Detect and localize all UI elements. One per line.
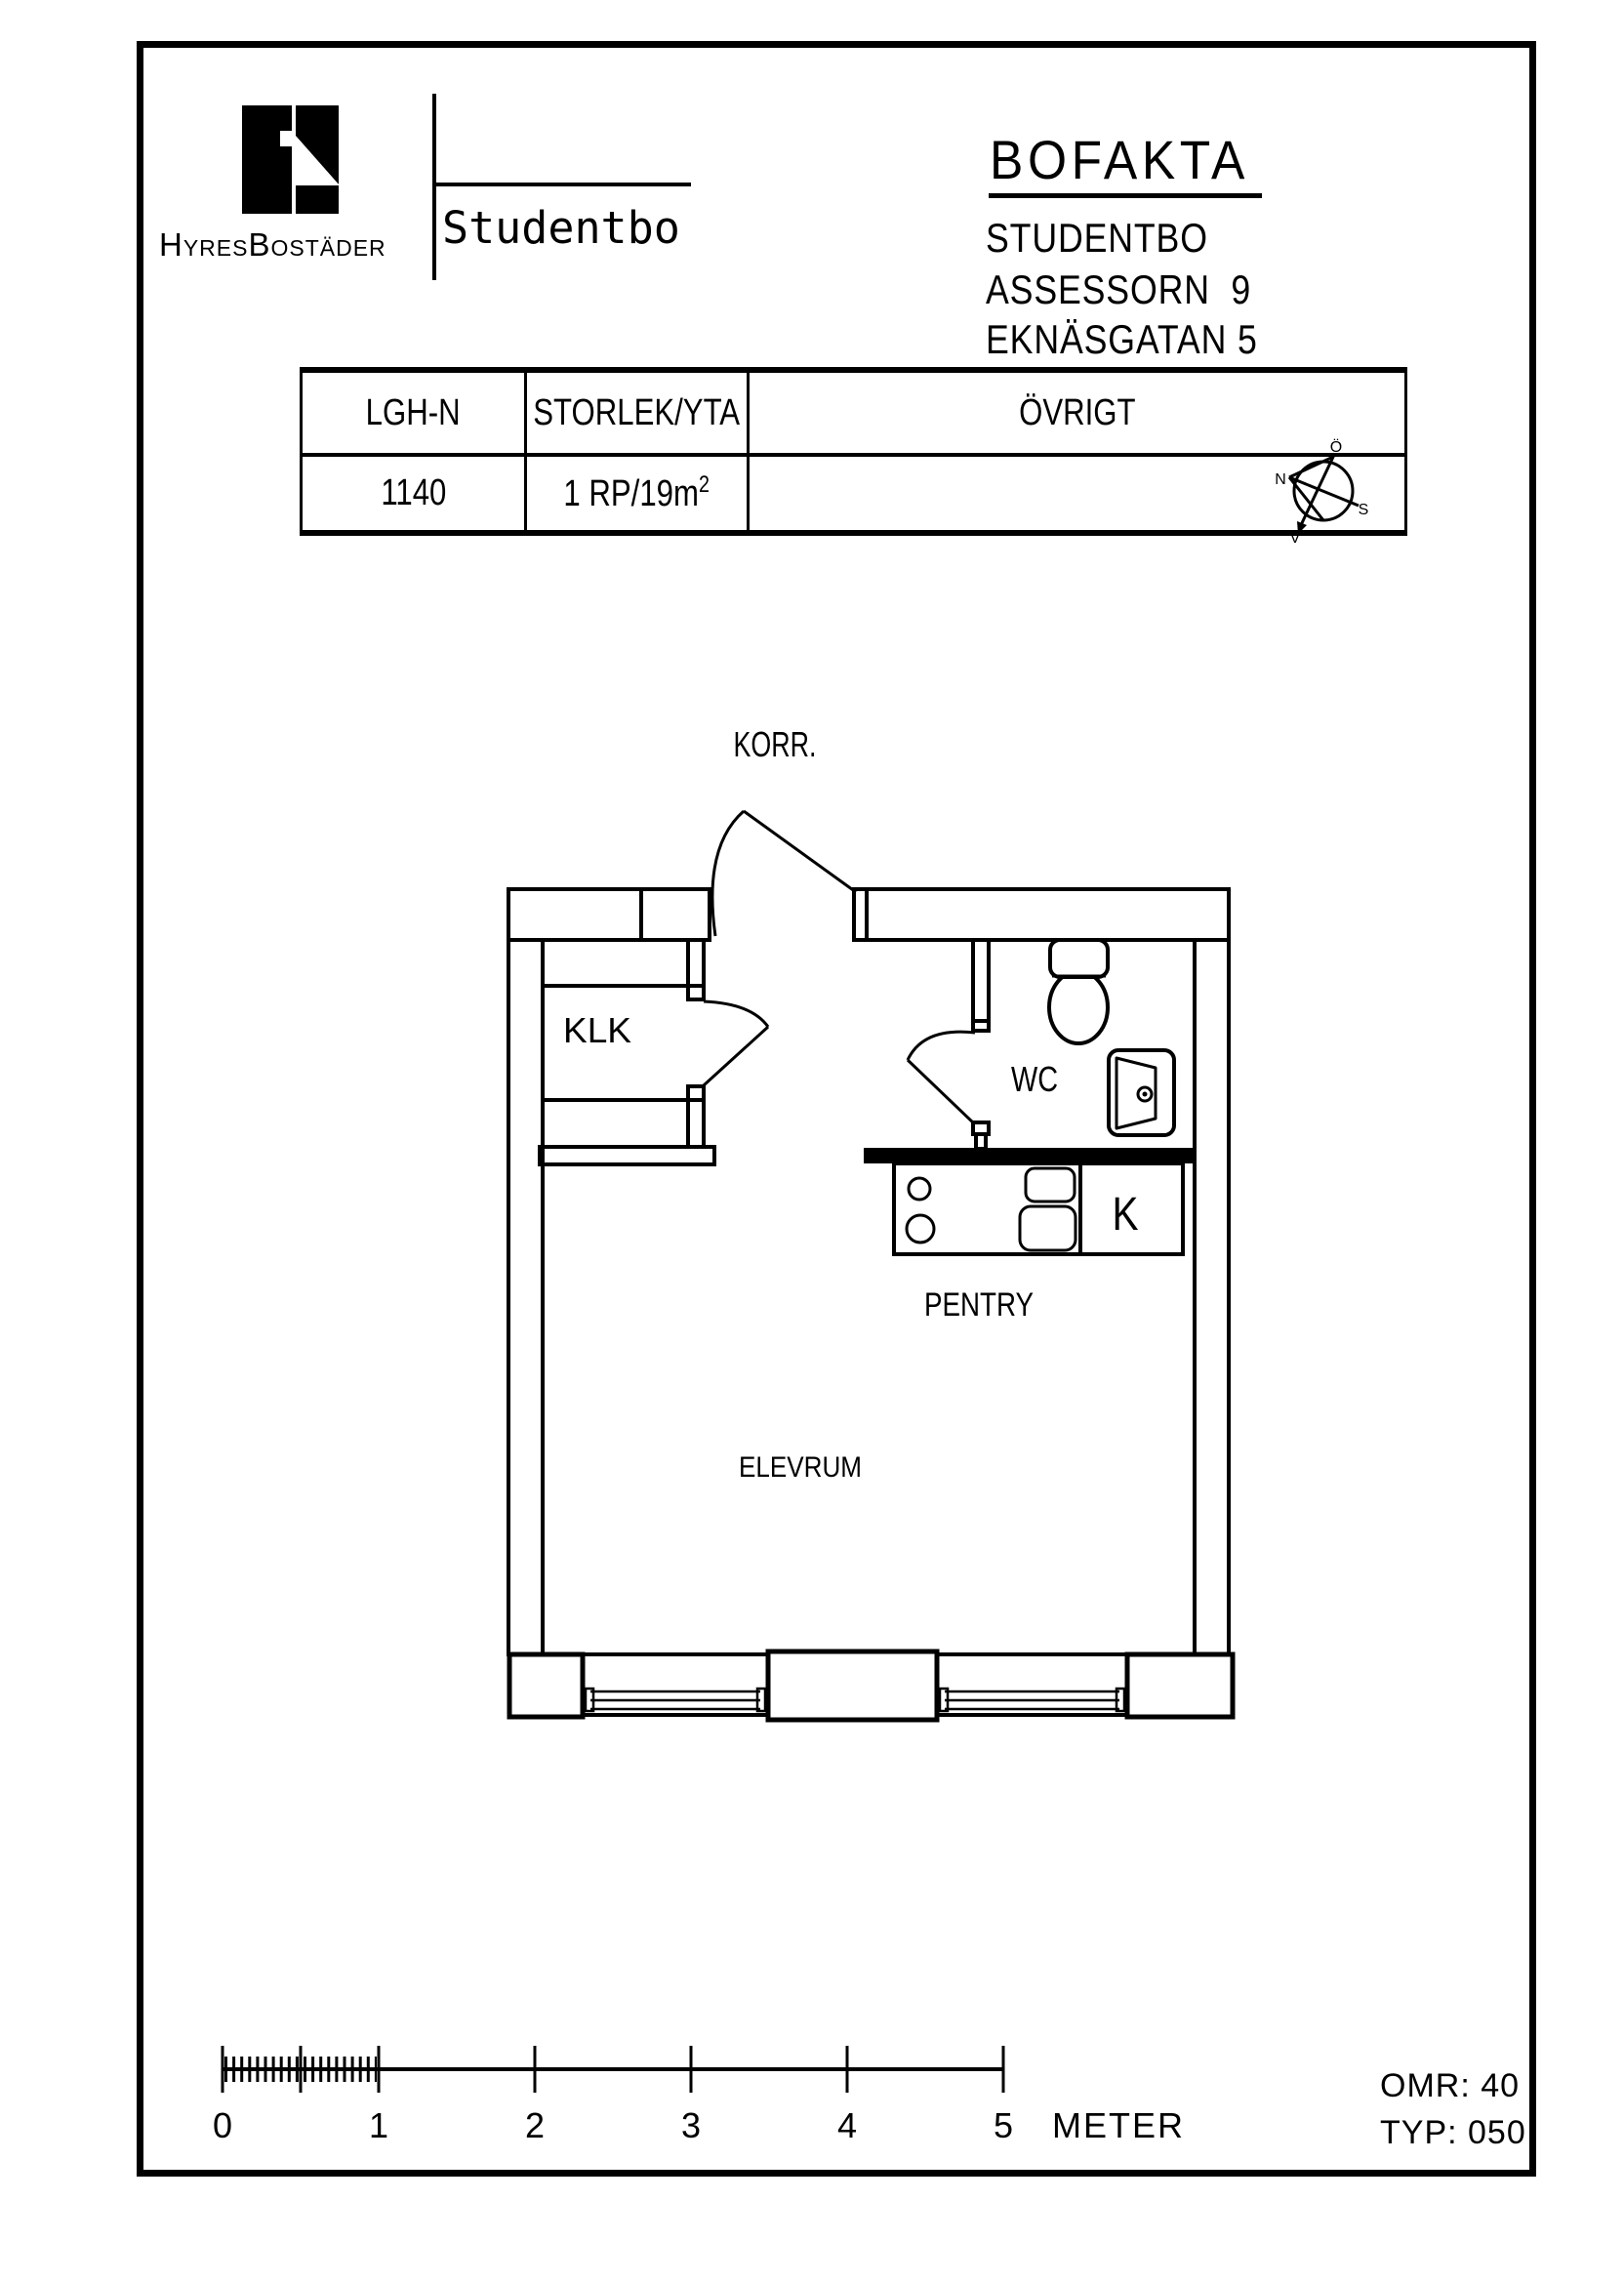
scale-tick-label: 3 xyxy=(681,2105,701,2145)
compass-west-label: V xyxy=(1290,530,1301,547)
compass-east-label: Ö xyxy=(1330,438,1342,456)
apartment-info-table: LGH-N STORLEK/YTA ÖVRIGT 1140 1 RP/19m2 xyxy=(300,367,1407,536)
document-title: BOFAKTA xyxy=(990,133,1249,187)
scale-tick-label: 1 xyxy=(369,2105,388,2145)
closet-door xyxy=(704,1001,768,1085)
scale-tick-label: 2 xyxy=(525,2105,545,2145)
stove-burner-icon xyxy=(907,1215,934,1243)
logo-rule-line xyxy=(436,183,691,186)
compass-south-label: S xyxy=(1359,502,1369,518)
washbasin-icon xyxy=(1109,1050,1174,1135)
apartment-number-cell: 1140 xyxy=(303,457,527,530)
compass-north-label: N xyxy=(1275,471,1286,488)
wc-label: WC xyxy=(1011,1059,1058,1099)
corridor-label: KORR. xyxy=(734,724,817,764)
property-name: ASSESSORN 9 xyxy=(986,269,1251,310)
kitchen-label: K xyxy=(1113,1189,1139,1241)
toilet-icon xyxy=(1049,940,1108,1043)
scale-tick-label: 0 xyxy=(213,2105,232,2145)
logo-divider-line xyxy=(432,94,436,280)
hyresbostader-logo-icon xyxy=(239,102,342,218)
floor-plan: KORR. KLK WC K PENTRY ELEVRUM xyxy=(488,703,1259,1767)
brand-product: Studentbo xyxy=(442,206,680,250)
bofakta-sheet: HyresBostäder Studentbo BOFAKTA STUDENTB… xyxy=(0,0,1624,2282)
scale-bar: 0 1 2 3 4 5 METER xyxy=(205,2030,1191,2157)
wc-door xyxy=(908,1032,975,1124)
room-label: ELEVRUM xyxy=(739,1451,862,1484)
col-header-apartment: LGH-N xyxy=(303,373,527,453)
table-data-row: 1140 1 RP/19m2 xyxy=(303,457,1404,530)
brand-name: HyresBostäder xyxy=(159,228,386,261)
col-header-size: STORLEK/YTA xyxy=(527,373,750,453)
type-code: TYP: 050 xyxy=(1380,2116,1526,2149)
sink-basin-icon xyxy=(1026,1168,1075,1202)
area-code: OMR: 40 xyxy=(1380,2069,1520,2102)
window xyxy=(937,1654,1127,1715)
entrance-door xyxy=(712,811,856,936)
street-address: EKNÄSGATAN 5 xyxy=(986,319,1258,360)
exterior-walls xyxy=(508,889,1229,1654)
pantry-wall xyxy=(864,1148,1195,1163)
kitchen-counter xyxy=(894,1163,1183,1254)
scale-tick-label: 4 xyxy=(837,2105,857,2145)
closet-walls xyxy=(540,940,714,1164)
stove-burner-icon xyxy=(909,1178,930,1200)
scale-tick-label: 5 xyxy=(994,2105,1013,2145)
compass-rose-icon: Ö N S V xyxy=(1269,434,1376,551)
window xyxy=(583,1654,768,1715)
table-header-row: LGH-N STORLEK/YTA ÖVRIGT xyxy=(303,373,1404,457)
pantry-label: PENTRY xyxy=(924,1286,1034,1324)
sink-basin-icon xyxy=(1020,1206,1076,1250)
title-underline xyxy=(989,193,1262,198)
closet-label: KLK xyxy=(563,1010,631,1050)
scale-unit-label: METER xyxy=(1052,2105,1185,2145)
project-name: STUDENTBO xyxy=(986,218,1208,259)
size-cell: 1 RP/19m2 xyxy=(527,457,750,530)
wc-walls xyxy=(973,940,989,1149)
